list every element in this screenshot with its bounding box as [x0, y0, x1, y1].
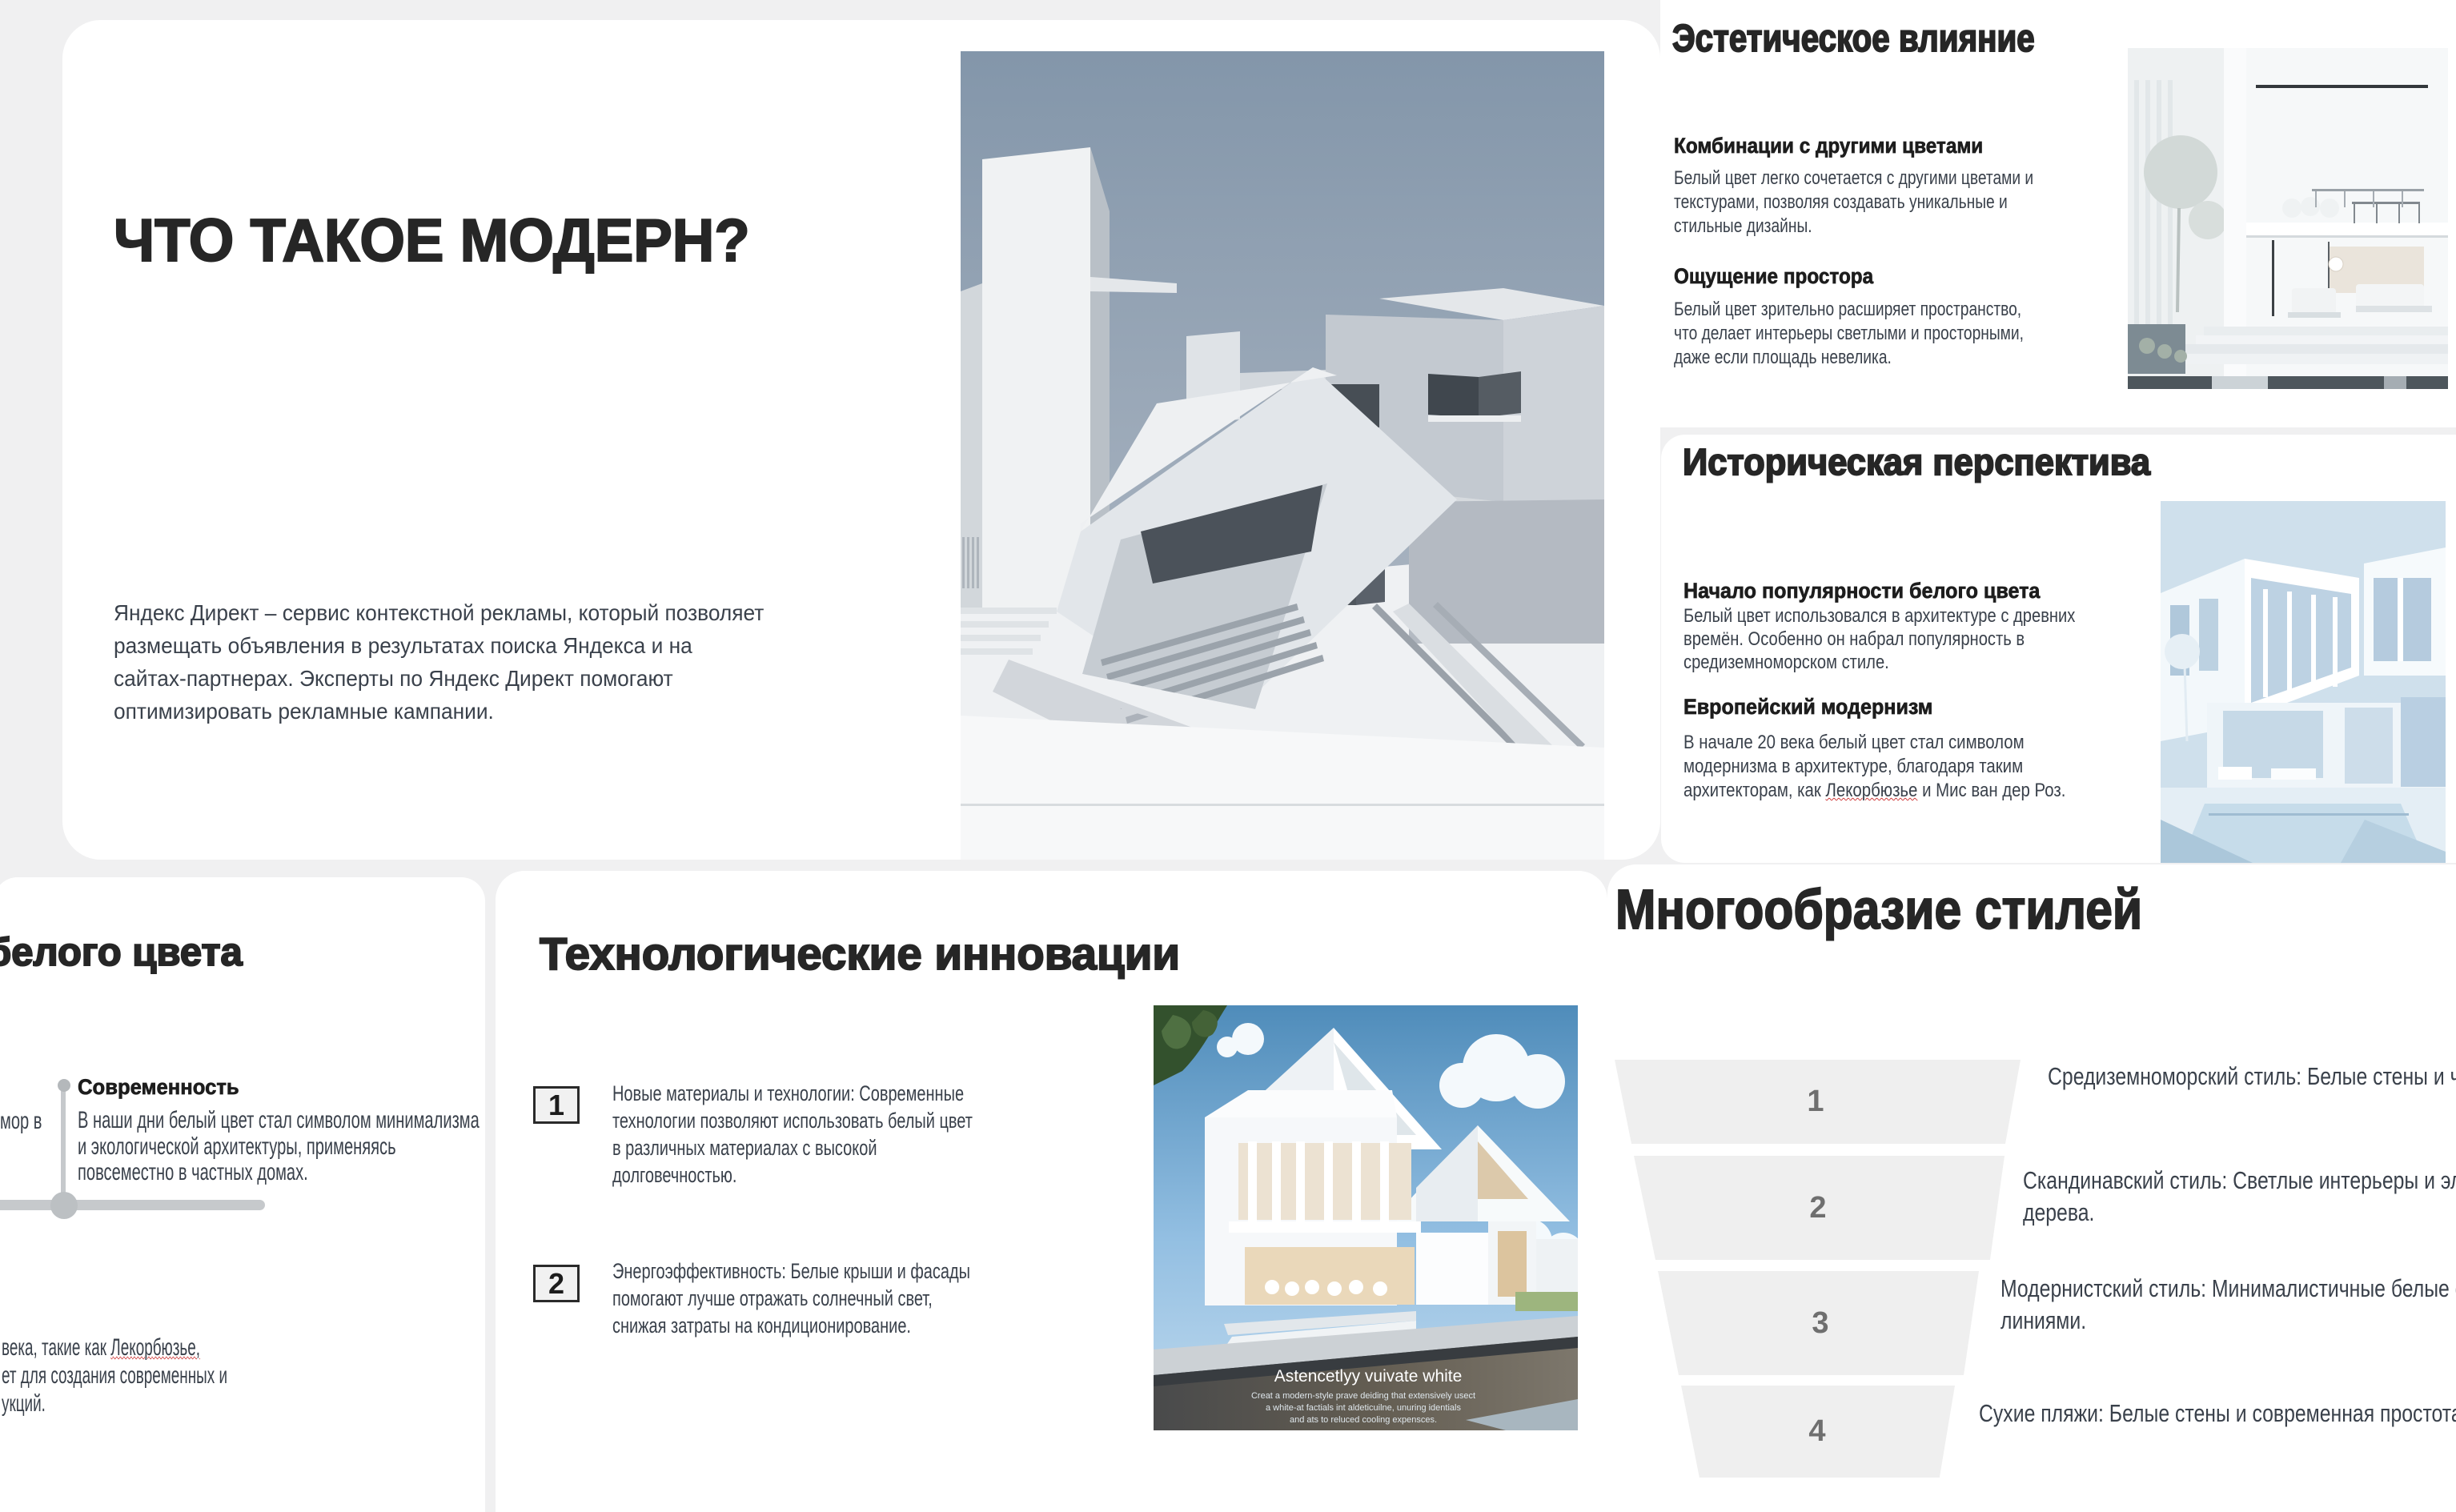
svg-text:Astencetlyy vuivate white: Astencetlyy vuivate white [1274, 1367, 1463, 1386]
svg-text:a white-at factials int aldeti: a white-at factials int aldeticuilne, un… [1266, 1403, 1461, 1413]
svg-text:Creat a modern-style prave dei: Creat a modern-style prave deiding that … [1251, 1391, 1475, 1401]
svg-text:and ats to reluced cooling exp: and ats to reluced cooling expensces. [1290, 1415, 1437, 1425]
